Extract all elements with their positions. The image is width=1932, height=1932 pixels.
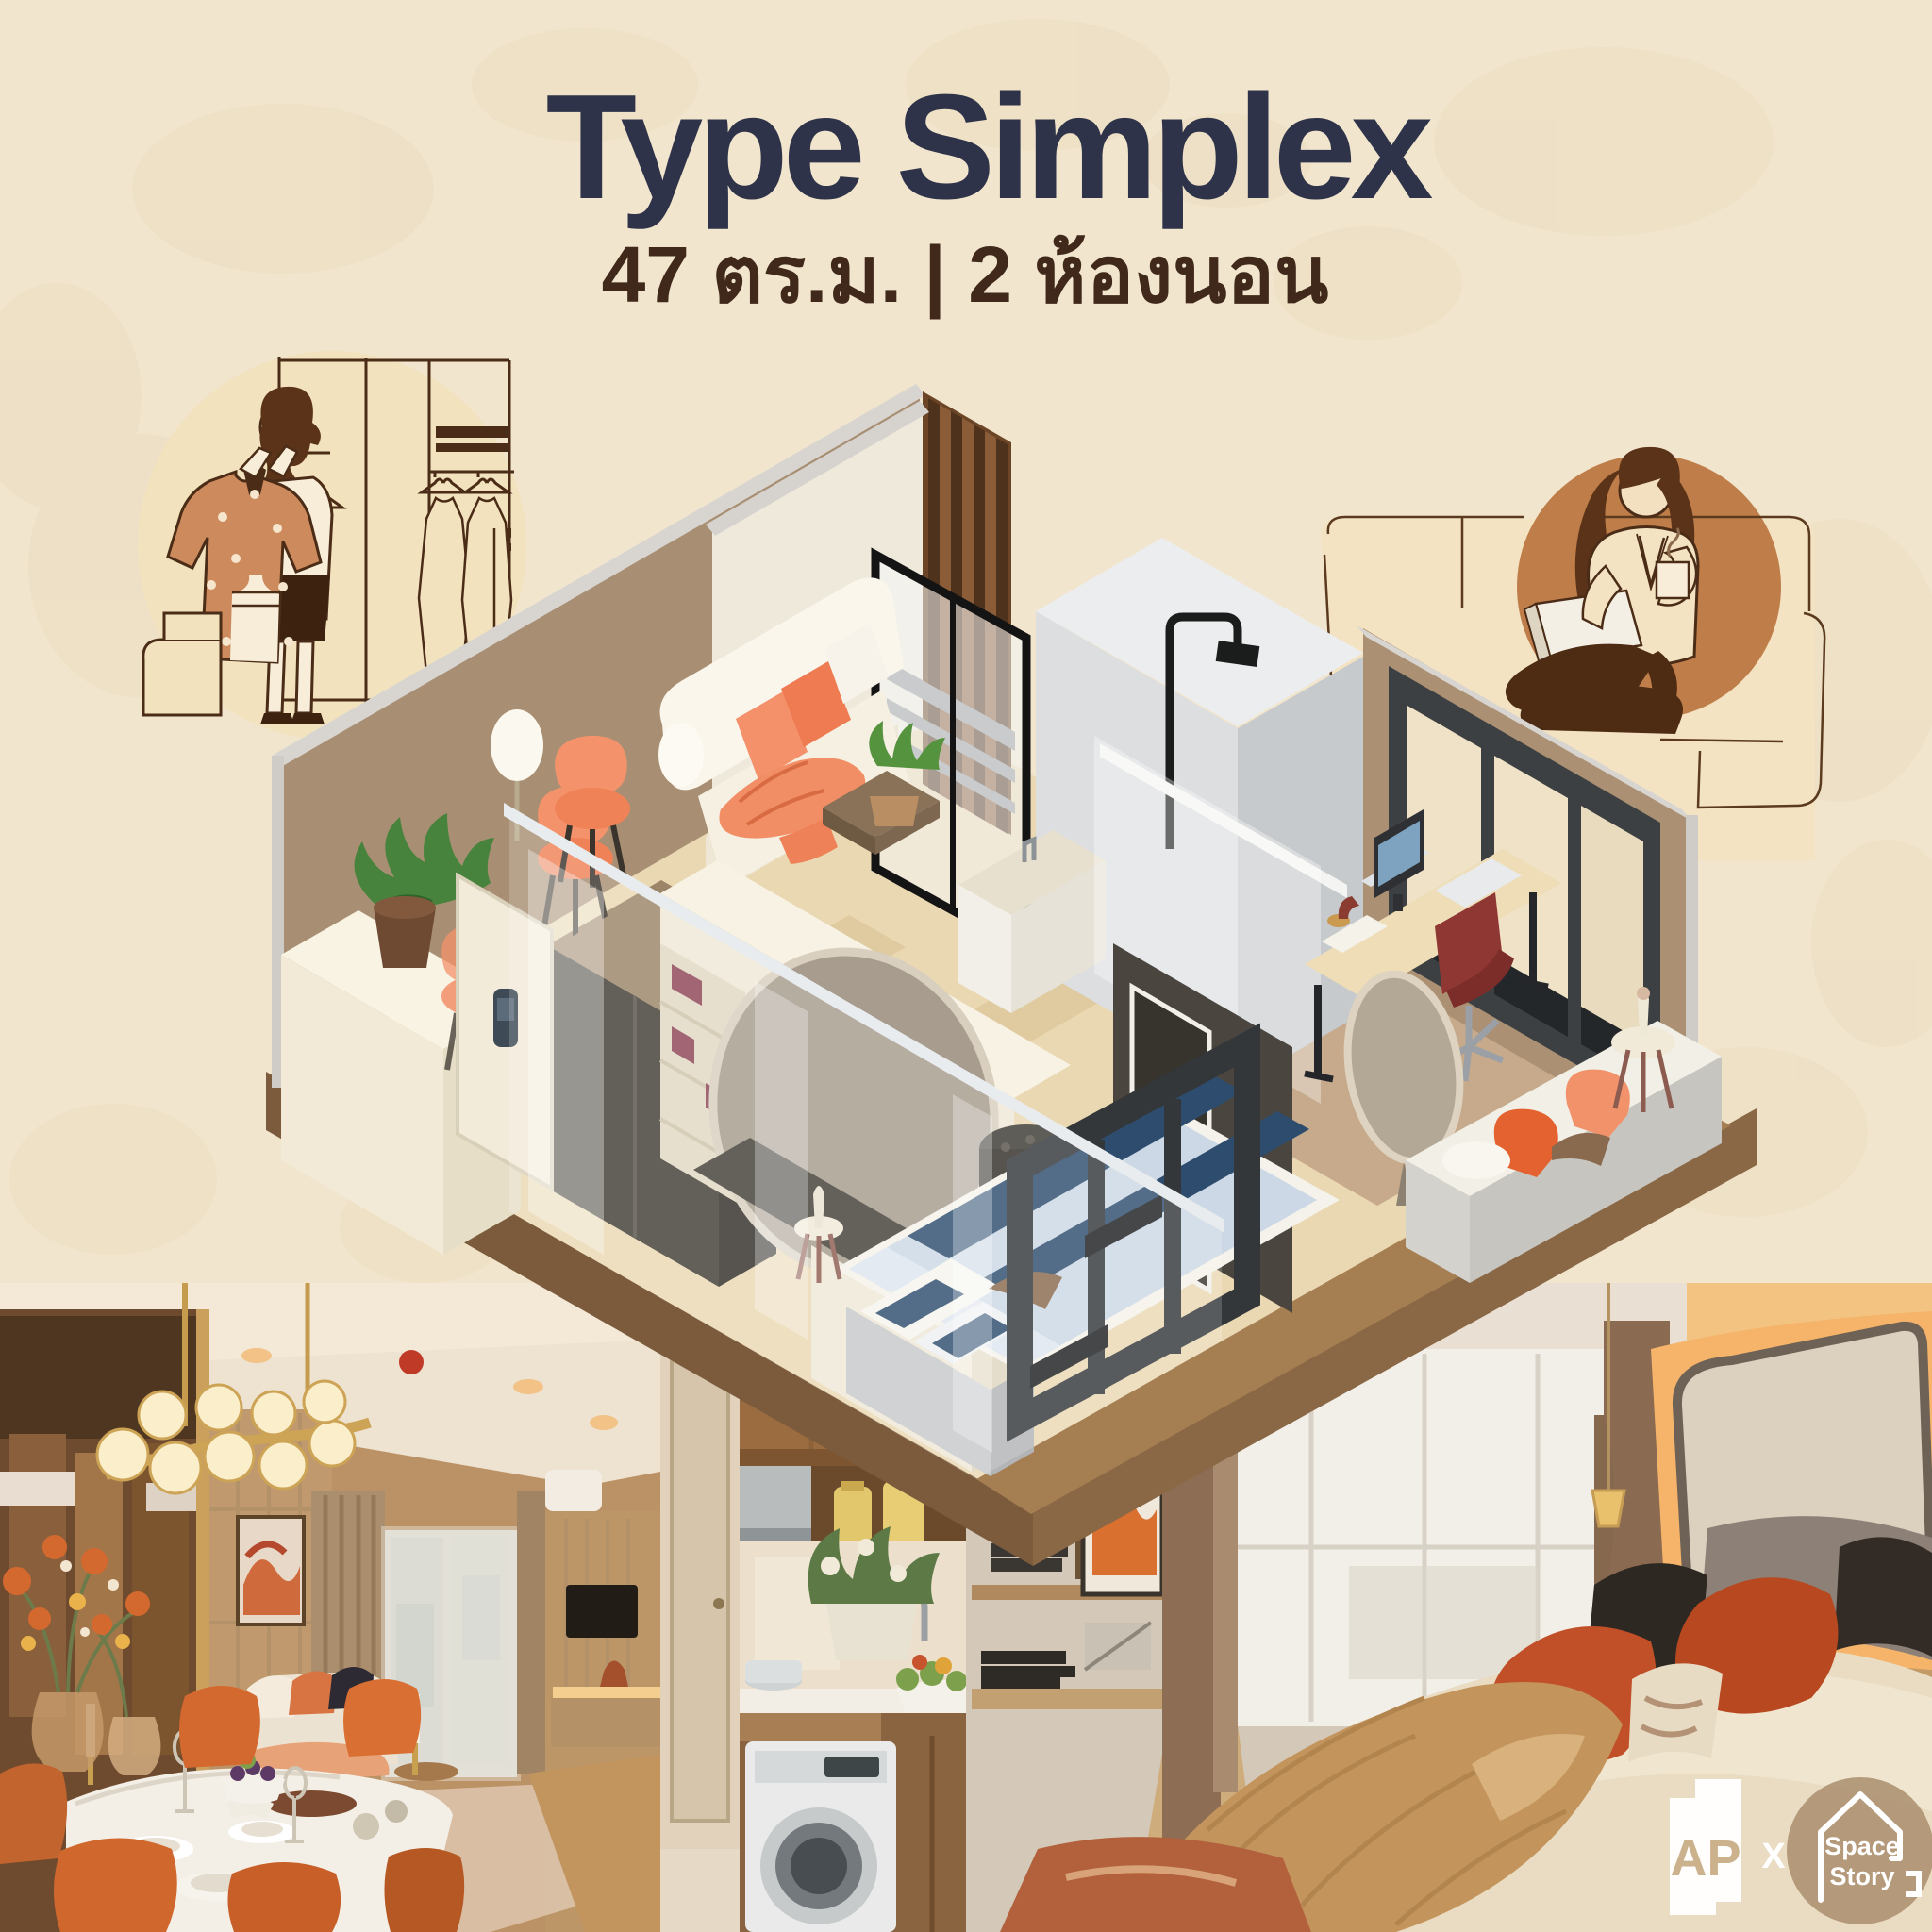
svg-text:Space: Space [1824,1832,1900,1860]
svg-text:Type Simplex: Type Simplex [546,64,1433,230]
svg-text:Story: Story [1829,1862,1894,1890]
svg-text:AP: AP [1670,1830,1740,1887]
svg-text:47 ตร.ม. | 2 ห้องนอน: 47 ตร.ม. | 2 ห้องนอน [602,230,1329,320]
svg-text:X: X [1761,1837,1786,1876]
